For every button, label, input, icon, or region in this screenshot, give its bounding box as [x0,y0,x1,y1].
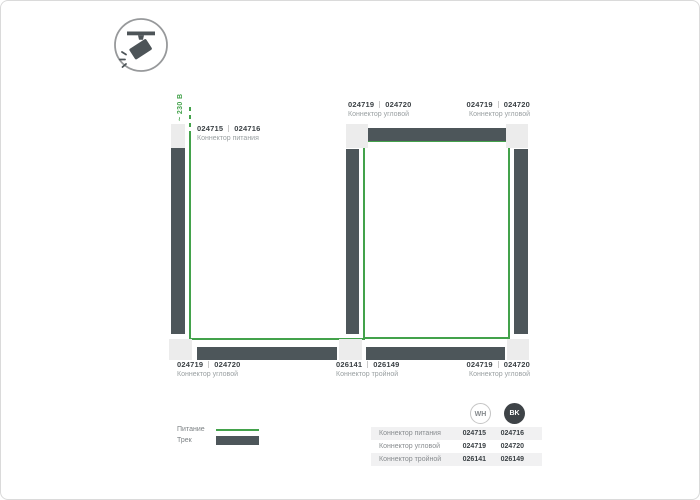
code-bk: 024720 [504,360,530,369]
legend-row-track: Трек [177,435,297,446]
connector-name: Коннектор тройной [371,456,444,463]
label-triple-connector: 026141026149 Коннектор тройной [336,360,399,380]
part-number-table: Коннектор питания 024715 024716 Коннекто… [371,427,542,466]
part-codes: 024719024720 [467,360,530,370]
code-wh: 024719 [444,443,486,450]
corner-connector-top-left [346,124,368,148]
track-spotlight-icon [113,17,169,73]
divider [208,361,209,368]
code-wh: 024719 [348,100,374,109]
label-corner-connector-bottom-left: 024719024720 Коннектор угловой [177,360,240,380]
part-name: Коннектор питания [197,134,260,144]
code-bk: 026149 [373,360,399,369]
legend: Питание Трек [177,424,297,446]
power-line-left-vertical [189,135,191,340]
part-codes: 024715024716 [197,124,260,134]
corner-connector-bottom-right [507,339,529,360]
label-corner-connector-top-right: 024719024720 Коннектор угловой [467,100,530,120]
power-line-right-loop [363,140,510,339]
part-codes: 024719024720 [348,100,411,110]
track-segment-bottom-left-horizontal [197,347,337,360]
part-codes: 024719024720 [467,100,530,110]
power-line-swatch [216,429,259,431]
catalog-diagram-page: ~ 230 В 024715024716 Коннектор питания 0… [0,0,700,500]
voltage-dimension-label: ~ 230 В [177,77,187,121]
code-bk: 024716 [486,430,524,437]
track-segment-right-vertical [514,149,528,334]
triple-connector-bottom-middle [339,339,362,360]
divider [228,125,229,132]
label-power-connector: 024715024716 Коннектор питания [197,124,260,144]
code-bk: 024720 [486,443,524,450]
legend-row-power: Питание [177,424,297,435]
divider [367,361,368,368]
corner-connector-bottom-left [169,339,192,360]
track-segment-top-horizontal [368,128,506,141]
part-codes: 026141026149 [336,360,399,370]
code-wh: 026141 [336,360,362,369]
code-wh: 024715 [444,430,486,437]
track-swatch [216,436,259,445]
part-name: Коннектор угловой [467,110,530,120]
legend-track-label: Трек [177,437,216,444]
part-name: Коннектор угловой [348,110,411,120]
part-name: Коннектор тройной [336,370,399,380]
divider [498,101,499,108]
code-wh: 024719 [467,360,493,369]
part-name: Коннектор угловой [467,370,530,380]
track-segment-left-vertical [171,148,185,334]
track-segment-middle-vertical [346,149,359,334]
power-connector-piece [171,124,185,149]
code-wh: 024719 [467,100,493,109]
connector-name: Коннектор угловой [371,443,444,450]
connector-name: Коннектор питания [371,430,444,437]
label-corner-connector-bottom-right: 024719024720 Коннектор угловой [467,360,530,380]
track-spotlight-icon-svg [113,17,169,73]
color-badge-black: BK [504,403,525,424]
part-name: Коннектор угловой [177,370,240,380]
label-corner-connector-top-left: 024719024720 Коннектор угловой [348,100,411,120]
corner-connector-top-right [506,124,528,148]
code-bk: 024720 [504,100,530,109]
table-row: Коннектор питания 024715 024716 [371,427,542,440]
divider [498,361,499,368]
code-bk: 026149 [486,456,524,463]
table-row: Коннектор угловой 024719 024720 [371,440,542,453]
table-row: Коннектор тройной 026141 026149 [371,453,542,466]
legend-power-label: Питание [177,426,216,433]
power-line-dashed-lead [189,107,191,135]
code-wh: 024715 [197,124,223,133]
part-codes: 024719024720 [177,360,240,370]
code-wh: 024719 [177,360,203,369]
code-bk: 024720 [385,100,411,109]
track-segment-bottom-right-horizontal [366,347,505,360]
divider [379,101,380,108]
color-badge-white: WH [470,403,491,424]
code-bk: 024720 [214,360,240,369]
code-bk: 024716 [234,124,260,133]
code-wh: 026141 [444,456,486,463]
